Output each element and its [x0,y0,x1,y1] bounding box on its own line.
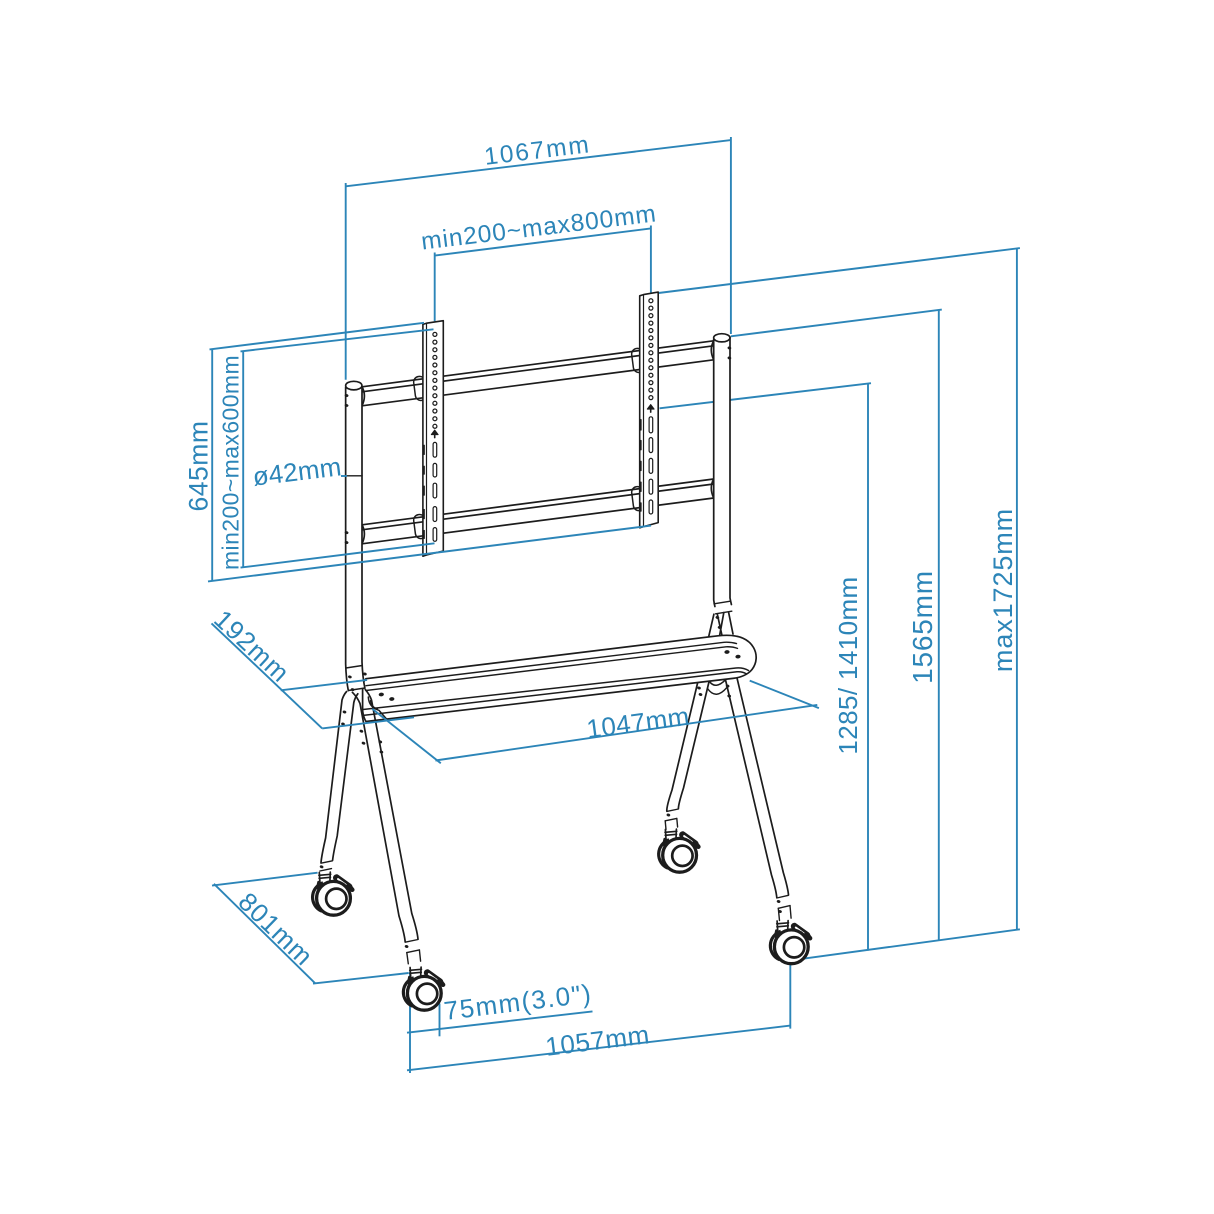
svg-text:645mm: 645mm [184,421,214,512]
svg-text:1565mm: 1565mm [907,570,938,684]
svg-text:min200~max600mm: min200~max600mm [218,355,244,570]
svg-text:1285/ 1410mm: 1285/ 1410mm [833,576,863,754]
svg-text:max1725mm: max1725mm [988,508,1018,672]
